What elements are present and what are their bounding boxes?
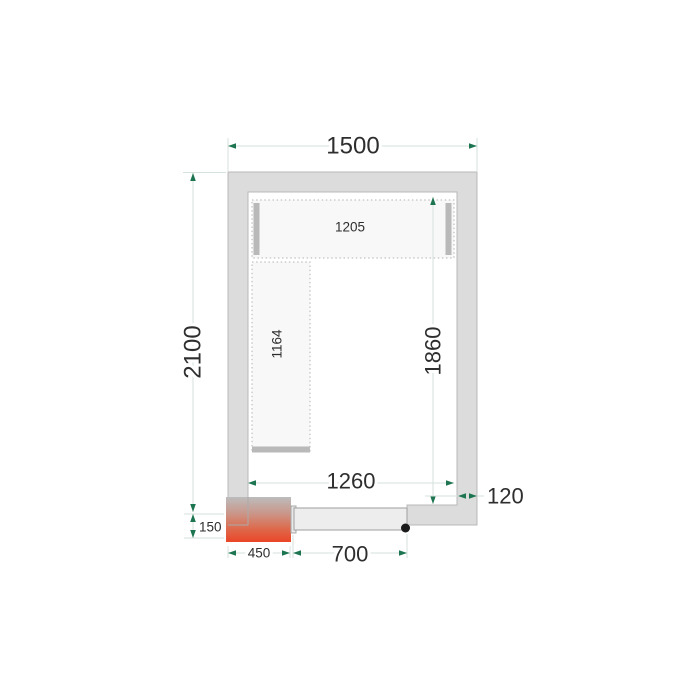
dim-door-frame-width: 450	[228, 546, 290, 561]
dim-wall-thickness-label: 120	[487, 484, 524, 509]
arrow-right-icon	[282, 550, 290, 556]
arrow-right-icon	[446, 480, 454, 486]
dim-door-width-label: 700	[332, 542, 369, 567]
dim-outer-depth-label: 2100	[180, 325, 207, 378]
arrow-left-icon	[228, 550, 236, 556]
arrow-right-icon	[469, 143, 477, 149]
arrow-left-icon	[228, 143, 236, 149]
dim-outer-width: 1500	[228, 133, 477, 172]
arrow-down-icon	[190, 530, 196, 538]
top-shelf: 1205	[252, 200, 454, 258]
arrow-up-icon	[190, 514, 196, 522]
arrow-left-icon	[248, 480, 256, 486]
dim-outer-width-label: 1500	[326, 133, 379, 160]
dim-door-width: 700	[293, 534, 407, 567]
left-shelf-length-label: 1164	[270, 329, 285, 359]
left-shelf-end-bar	[252, 447, 310, 453]
door-leaf	[294, 508, 407, 530]
dim-inner-width-label: 1260	[327, 469, 376, 494]
arrow-down-icon	[430, 496, 436, 504]
door-hinge-dot	[401, 524, 410, 533]
left-shelf: 1164	[252, 262, 310, 453]
floor-plan-drawing: 1205 1164 1500 2100 150 1860 12	[0, 0, 700, 700]
dim-inner-width: 1260	[248, 469, 454, 494]
top-shelf-length-label: 1205	[335, 220, 365, 235]
arrow-down-icon	[190, 504, 196, 512]
arrow-right-icon	[399, 550, 407, 556]
arrow-left-icon	[293, 550, 301, 556]
dim-inner-depth-label: 1860	[421, 327, 446, 376]
top-shelf-left-end-bar	[254, 203, 260, 255]
dim-outer-depth: 2100	[180, 173, 227, 513]
arrow-up-icon	[190, 173, 196, 181]
dim-door-frame-height: 150	[184, 514, 224, 538]
top-shelf-right-end-bar	[446, 203, 452, 255]
floor-plan-canvas: 1205 1164 1500 2100 150 1860 12	[0, 0, 700, 700]
dim-door-frame-height-label: 150	[199, 520, 222, 535]
dim-door-frame-width-label: 450	[248, 546, 271, 561]
door-frame-heater	[226, 497, 291, 542]
